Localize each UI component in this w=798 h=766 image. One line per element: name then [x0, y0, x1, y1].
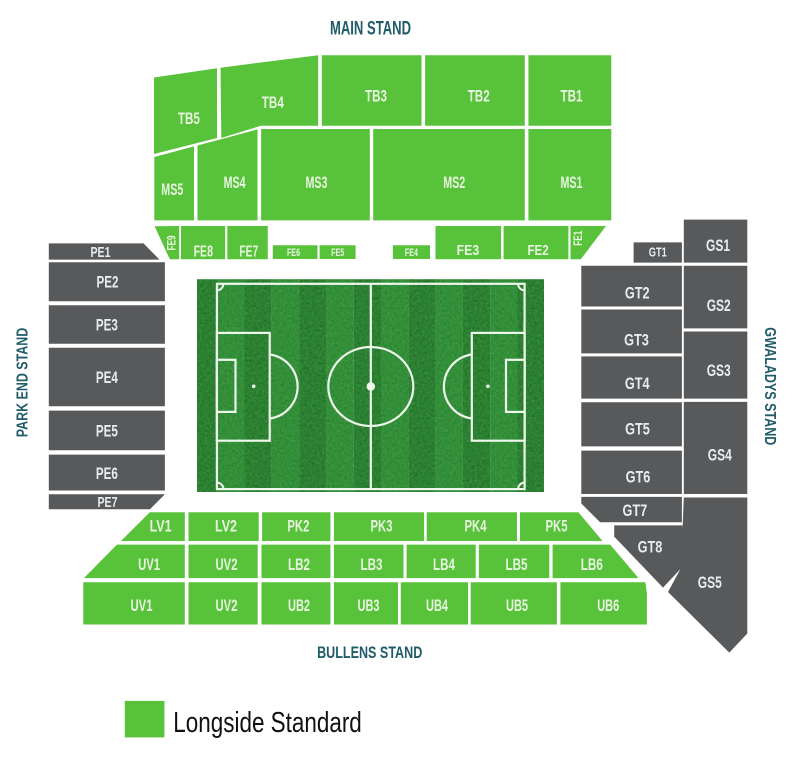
svg-text:PE6: PE6: [96, 465, 118, 483]
svg-text:LB6: LB6: [581, 556, 603, 574]
svg-text:LV1: LV1: [150, 518, 172, 536]
svg-text:GT6: GT6: [626, 469, 651, 487]
svg-text:FE4: FE4: [405, 247, 418, 259]
svg-text:GT3: GT3: [624, 332, 649, 350]
svg-text:UB5: UB5: [506, 597, 528, 615]
svg-text:FE8: FE8: [194, 243, 214, 260]
svg-text:GT4: GT4: [625, 375, 650, 393]
svg-text:FE7: FE7: [239, 243, 258, 260]
svg-text:GS3: GS3: [707, 362, 731, 380]
svg-text:PK5: PK5: [546, 518, 568, 536]
svg-text:UV1: UV1: [131, 597, 153, 615]
svg-text:UV1: UV1: [138, 556, 160, 574]
svg-text:MS4: MS4: [224, 174, 246, 192]
svg-text:MS5: MS5: [161, 181, 183, 199]
svg-text:TB4: TB4: [262, 94, 284, 112]
svg-text:GWALADYS STAND: GWALADYS STAND: [761, 327, 778, 445]
svg-text:FE3: FE3: [457, 242, 480, 259]
svg-text:FE9: FE9: [164, 235, 178, 250]
svg-text:PK2: PK2: [287, 518, 309, 536]
svg-text:PE1: PE1: [91, 244, 111, 261]
svg-text:PARK END STAND: PARK END STAND: [14, 328, 31, 438]
svg-text:PK4: PK4: [465, 518, 487, 536]
svg-text:PK3: PK3: [371, 518, 393, 536]
svg-text:MS3: MS3: [306, 174, 328, 192]
svg-text:MAIN STAND: MAIN STAND: [330, 18, 411, 40]
svg-text:UB3: UB3: [358, 597, 380, 615]
svg-text:PE7: PE7: [98, 494, 118, 511]
svg-text:GS4: GS4: [708, 446, 732, 464]
svg-text:PE4: PE4: [96, 369, 118, 387]
svg-text:GS2: GS2: [707, 297, 731, 315]
svg-text:TB1: TB1: [561, 88, 583, 106]
svg-text:TB5: TB5: [178, 110, 200, 128]
svg-text:GT7: GT7: [623, 502, 648, 520]
svg-text:LB3: LB3: [361, 556, 383, 574]
svg-text:MS2: MS2: [443, 174, 465, 192]
svg-text:PE3: PE3: [96, 317, 118, 335]
svg-text:BULLENS STAND: BULLENS STAND: [317, 643, 422, 662]
svg-text:UV2: UV2: [216, 597, 238, 615]
svg-text:TB3: TB3: [365, 88, 387, 106]
svg-text:PE2: PE2: [97, 273, 119, 291]
svg-text:GT5: GT5: [625, 421, 650, 439]
svg-text:MS1: MS1: [561, 174, 583, 192]
svg-text:Longside Standard: Longside Standard: [173, 707, 361, 739]
svg-text:UB2: UB2: [288, 597, 310, 615]
svg-text:GT8: GT8: [638, 539, 663, 557]
svg-text:LB5: LB5: [506, 556, 528, 574]
svg-text:FE2: FE2: [527, 242, 548, 259]
svg-text:UV2: UV2: [216, 556, 238, 574]
svg-text:GS1: GS1: [706, 237, 730, 255]
svg-text:GT1: GT1: [649, 245, 667, 260]
svg-text:UB6: UB6: [597, 597, 619, 615]
svg-text:FE5: FE5: [331, 247, 344, 259]
svg-text:FE1: FE1: [571, 230, 585, 245]
svg-text:TB2: TB2: [468, 88, 490, 106]
svg-text:LB4: LB4: [433, 556, 455, 574]
svg-text:GS5: GS5: [698, 574, 722, 592]
svg-text:GT2: GT2: [625, 284, 650, 302]
svg-text:PE5: PE5: [96, 423, 118, 441]
svg-text:UB4: UB4: [426, 597, 448, 615]
svg-text:FE6: FE6: [287, 247, 300, 259]
svg-text:LV2: LV2: [215, 518, 237, 536]
svg-text:LB2: LB2: [288, 556, 310, 574]
